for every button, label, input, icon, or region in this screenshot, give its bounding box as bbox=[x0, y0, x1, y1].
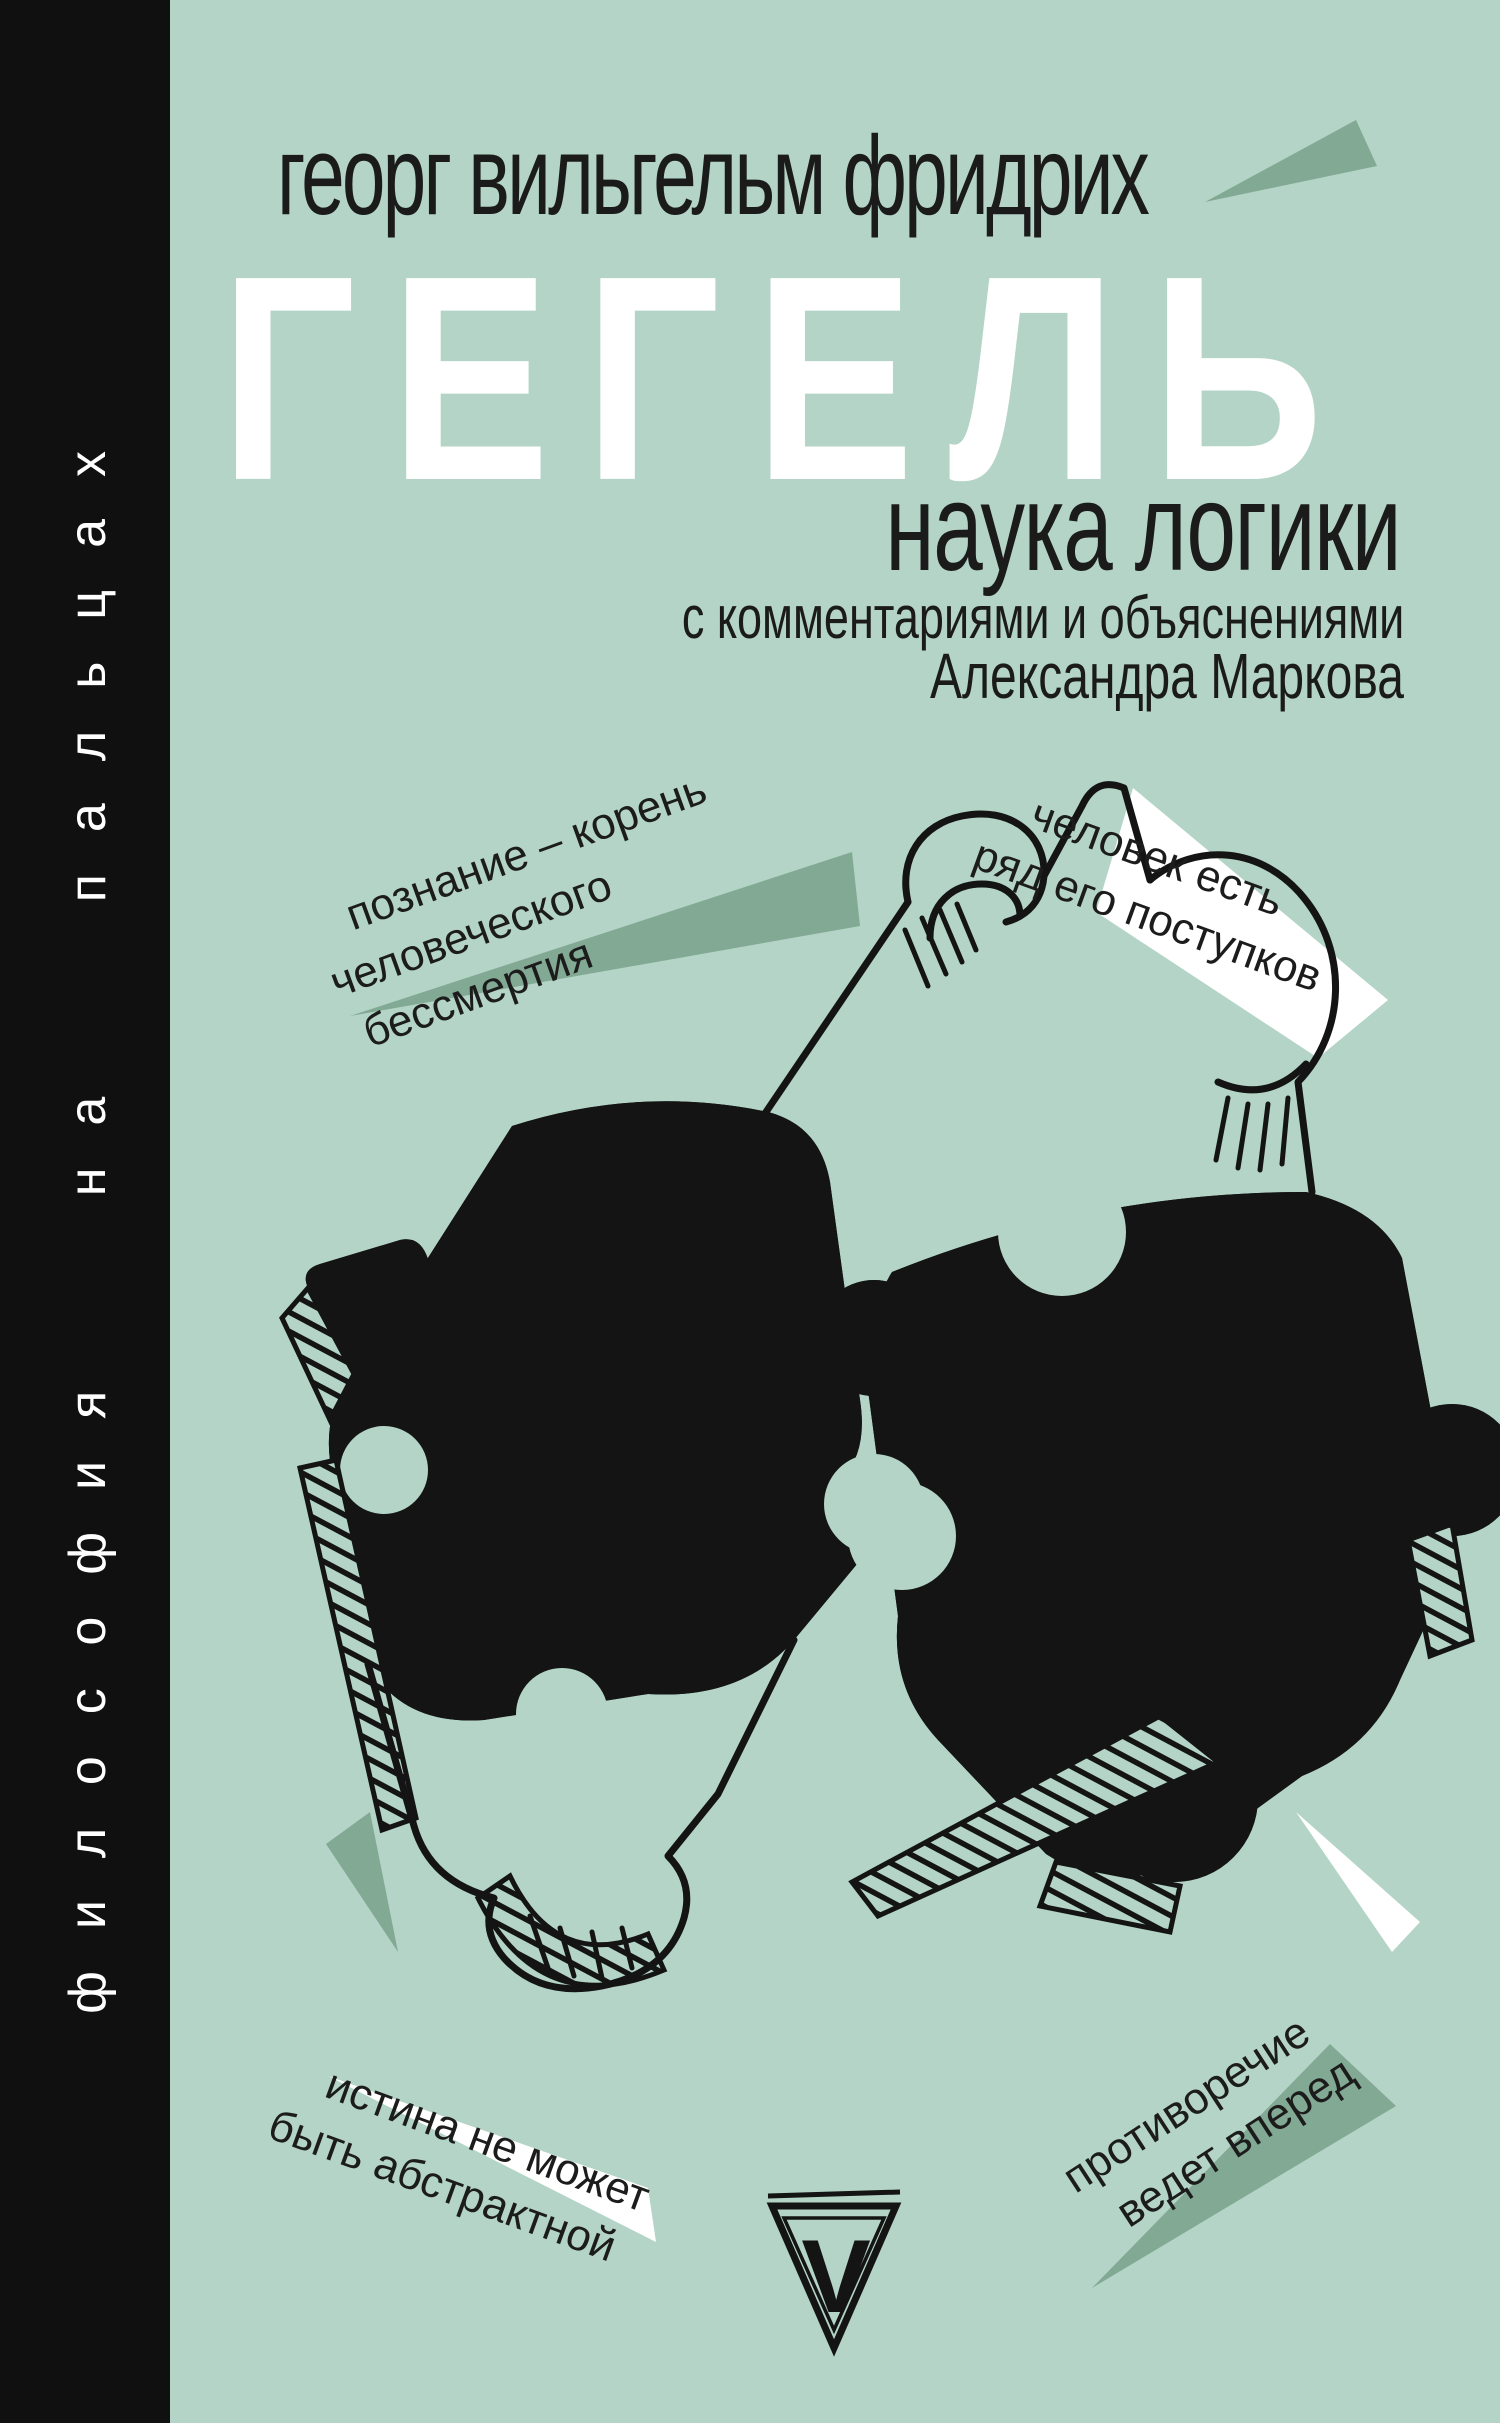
publisher-logo: V bbox=[768, 2192, 900, 2348]
book-cover: { "cover": { "series_spine": "философия … bbox=[0, 0, 1500, 2423]
series-title-vertical: философия на пальцах bbox=[52, 409, 118, 2014]
wedge-bottom-right bbox=[1296, 1812, 1420, 1952]
annotation-line-2: Александра Маркова bbox=[930, 644, 1404, 708]
wedge-top-right bbox=[1205, 120, 1377, 202]
annotation-line-1: с комментариями и объяснениями bbox=[682, 588, 1404, 648]
wedge-bottom-left bbox=[326, 1812, 398, 1952]
book-subtitle: наука логики bbox=[885, 466, 1400, 590]
publisher-logo-letter: V bbox=[801, 2219, 870, 2335]
spine-strip: философия на пальцах bbox=[0, 0, 170, 2423]
